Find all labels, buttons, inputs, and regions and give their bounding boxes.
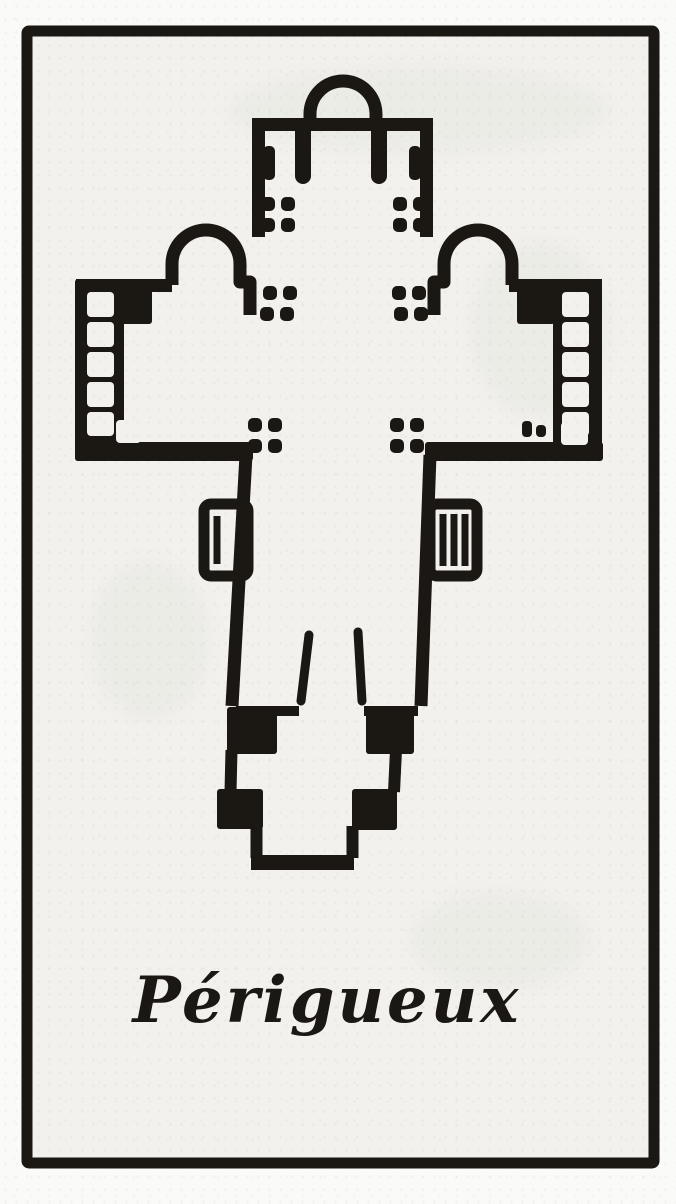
wall-niche: [87, 352, 114, 377]
plan-caption: Périgueux: [131, 963, 522, 1038]
pier-dot: [280, 307, 294, 321]
narthex-west-wall: [231, 750, 232, 792]
wall-niche: [562, 382, 589, 407]
pier-dot: [410, 418, 424, 432]
pier-dot: [393, 218, 407, 232]
wall-niche: [116, 420, 141, 443]
nave-pier-block: [227, 707, 277, 754]
pier-dot: [413, 218, 427, 232]
wall-pilaster: [522, 421, 532, 437]
wall-niche: [87, 322, 114, 347]
wall-niche: [562, 352, 589, 377]
pier-dot: [260, 307, 274, 321]
perigueux-floor-plan: Périgueux: [0, 0, 676, 1204]
pier-dot: [390, 439, 404, 453]
pier-dot: [414, 307, 428, 321]
pier-dot: [283, 286, 297, 300]
pier-dot: [281, 218, 295, 232]
pier-dot: [413, 197, 427, 211]
bleed-smudge: [90, 560, 210, 720]
wall-niche: [87, 382, 114, 407]
corner-pier-block: [114, 288, 152, 324]
narthex-east-wall: [394, 750, 396, 792]
pier-dot: [261, 218, 275, 232]
wall-niche: [562, 322, 589, 347]
pier-dot: [248, 418, 262, 432]
pier-dot: [268, 439, 282, 453]
scanned-plate: Périgueux: [0, 0, 676, 1204]
wall-niche: [562, 292, 589, 317]
nave-pier-block: [217, 789, 263, 829]
wall-pilaster: [263, 146, 275, 180]
nave-pier-block: [352, 789, 397, 830]
wall-niche: [87, 412, 114, 436]
pier-dot: [412, 286, 426, 300]
pier-dot: [263, 286, 277, 300]
interior-screen-wall: [358, 632, 362, 701]
west-arm-bottom-wall: [75, 442, 253, 461]
wall-pilaster: [536, 425, 546, 437]
pier-dot: [261, 197, 275, 211]
wall-pilaster: [409, 146, 421, 180]
corner-pier-block: [517, 288, 555, 324]
wall-niche: [561, 422, 588, 445]
nave-east-wall: [421, 455, 430, 706]
pier-dot: [393, 197, 407, 211]
pier-dot: [394, 307, 408, 321]
pier-dot: [392, 286, 406, 300]
pier-dot: [390, 418, 404, 432]
pier-dot: [268, 418, 282, 432]
pier-dot: [410, 439, 424, 453]
nave-pier-block: [366, 709, 414, 754]
wall-niche: [87, 292, 114, 317]
pier-dot: [281, 197, 295, 211]
